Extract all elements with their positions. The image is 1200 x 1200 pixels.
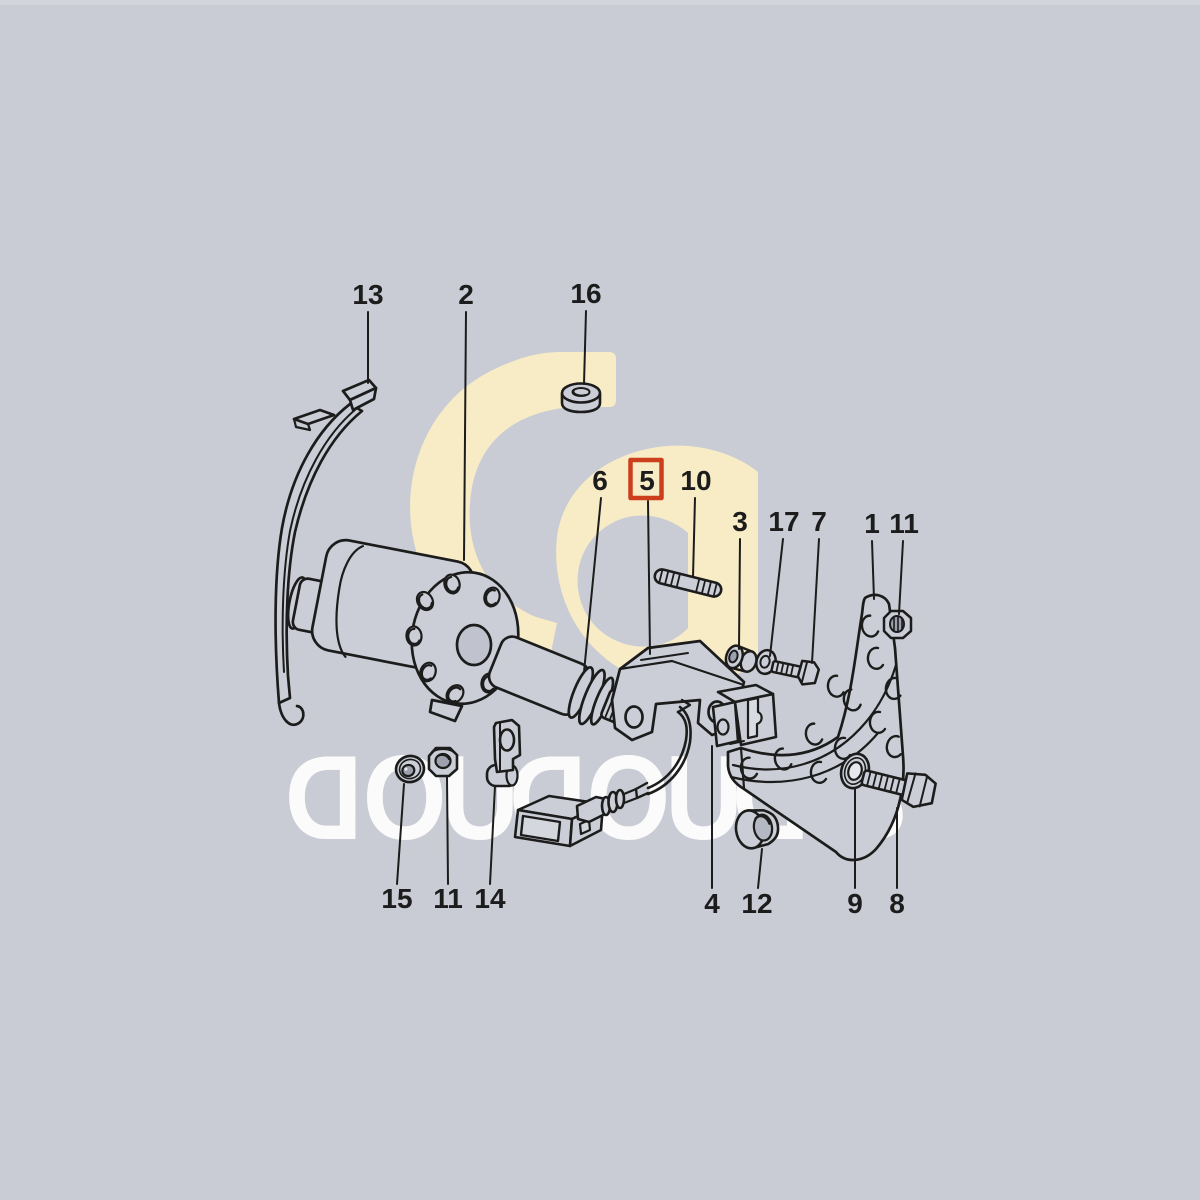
leader-15: [397, 784, 404, 884]
part-label-11-bottom[interactable]: 11: [433, 883, 463, 914]
part-14-tab-drawing: [487, 720, 520, 786]
part-label-9[interactable]: 9: [847, 888, 863, 919]
part-4-clamp-drawing: [713, 685, 776, 746]
part-label-4[interactable]: 4: [704, 888, 720, 919]
leader-10: [693, 498, 695, 577]
part-label-6[interactable]: 6: [592, 465, 608, 496]
part-12-bushing-drawing: [734, 807, 781, 850]
part-label-3[interactable]: 3: [732, 506, 748, 537]
leader-7: [812, 539, 819, 663]
leader-11-top: [899, 541, 903, 614]
part-10-stud-drawing: [653, 568, 722, 598]
part-label-1[interactable]: 1: [864, 508, 880, 539]
part-label-14[interactable]: 14: [474, 883, 506, 914]
part-label-10[interactable]: 10: [680, 465, 711, 496]
part-label-7[interactable]: 7: [811, 506, 827, 537]
part-label-12[interactable]: 12: [741, 888, 772, 919]
leader-2: [464, 312, 466, 560]
part-11-nut-top-drawing: [884, 611, 911, 638]
part-label-15[interactable]: 15: [381, 883, 412, 914]
part-label-8[interactable]: 8: [889, 888, 905, 919]
part-label-17[interactable]: 17: [768, 506, 799, 537]
part-label-11-top[interactable]: 11: [889, 508, 919, 539]
part-label-5-highlighted[interactable]: 5: [639, 465, 655, 496]
leader-6: [584, 498, 601, 672]
leader-14: [490, 786, 495, 884]
part-2-motor-drawing: [285, 537, 527, 721]
part-11-nut-bottom-drawing: [429, 748, 457, 776]
leader-5: [648, 501, 650, 654]
part-label-16[interactable]: 16: [570, 278, 601, 309]
connector-plug-drawing: [515, 700, 691, 846]
leader-16: [584, 311, 586, 384]
leader-3: [739, 539, 740, 649]
part-15-washer-drawing: [393, 753, 427, 785]
leader-11-bottom: [447, 777, 448, 884]
part-label-2[interactable]: 2: [458, 279, 474, 310]
parts-diagram: DOUDOUDIS: [0, 0, 1200, 1200]
leader-17: [770, 539, 783, 656]
leader-1: [872, 541, 874, 599]
part-16-grommet-drawing: [562, 384, 600, 413]
part-label-13[interactable]: 13: [352, 279, 383, 310]
leader-12: [758, 849, 762, 888]
exploded-view-drawing: 13 2 16 6 5 10 3 17 7 1 11 15 11 14 4 12…: [0, 0, 1200, 1200]
